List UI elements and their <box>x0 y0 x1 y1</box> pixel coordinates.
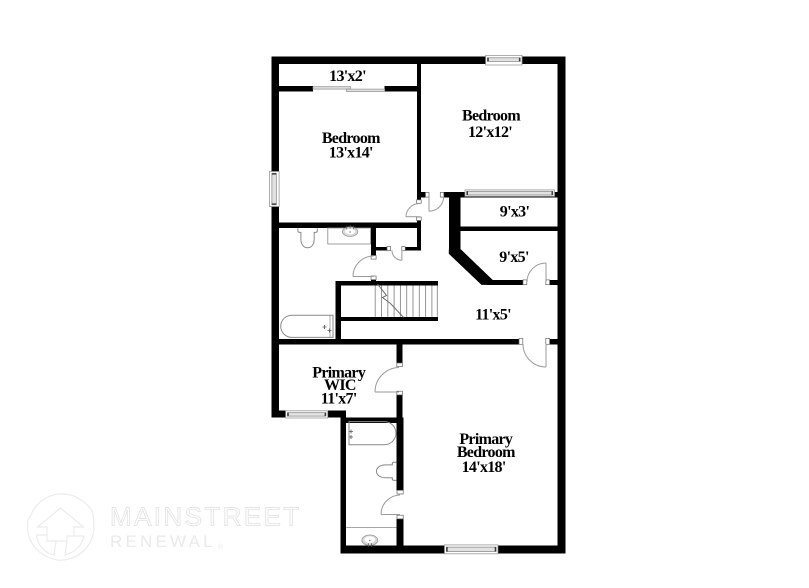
svg-text:RENEWAL: RENEWAL <box>110 532 216 551</box>
svg-text:11'x7': 11'x7' <box>321 391 357 408</box>
svg-text:11'x5': 11'x5' <box>475 307 511 324</box>
svg-text:13'x14': 13'x14' <box>329 145 373 162</box>
svg-text:Bedroom: Bedroom <box>462 107 521 124</box>
svg-text:9'x5': 9'x5' <box>499 249 529 266</box>
svg-text:9'x3': 9'x3' <box>500 203 530 220</box>
svg-text:®: ® <box>218 543 224 551</box>
svg-text:MAINSTREET: MAINSTREET <box>110 502 302 532</box>
svg-text:14'x18': 14'x18' <box>462 459 506 476</box>
svg-text:12'x12': 12'x12' <box>468 124 512 141</box>
svg-text:13'x2': 13'x2' <box>329 68 366 85</box>
